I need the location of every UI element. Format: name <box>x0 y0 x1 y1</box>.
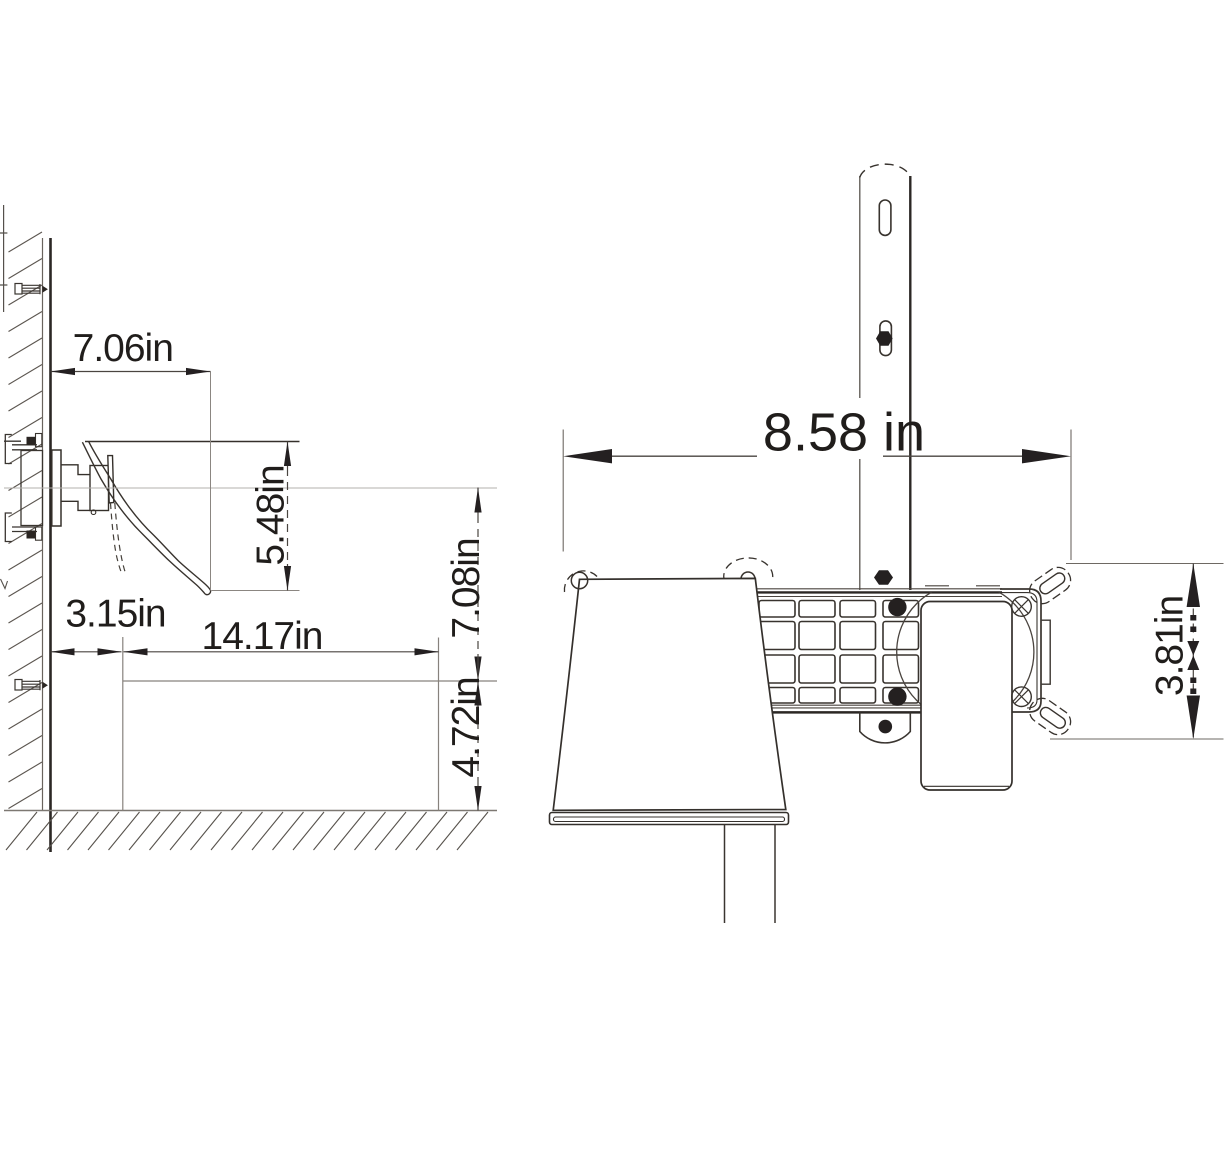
svg-text:14.17in: 14.17in <box>202 615 323 658</box>
svg-text:3.15in: 3.15in <box>65 593 165 636</box>
svg-text:7.06in: 7.06in <box>73 327 173 370</box>
svg-text:5.48in: 5.48in <box>250 465 293 565</box>
svg-text:3.81in: 3.81in <box>1149 596 1192 696</box>
svg-text:7.08in: 7.08in <box>445 538 488 638</box>
svg-text:4.72in: 4.72in <box>445 677 488 777</box>
svg-text:8.58 in: 8.58 in <box>763 403 925 463</box>
